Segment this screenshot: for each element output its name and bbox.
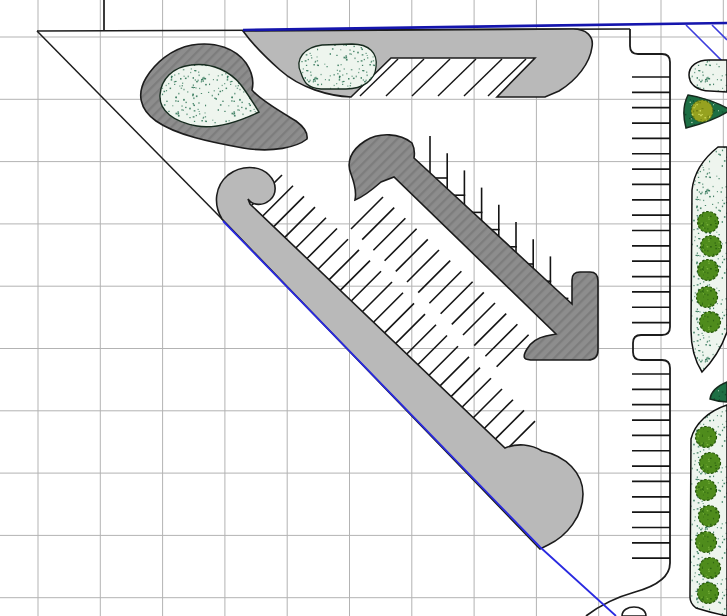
center-median-island [349, 135, 598, 360]
top-median-island [243, 29, 592, 97]
tree-symbol [696, 532, 717, 553]
landscape-right-layer [684, 60, 727, 616]
tree-symbol [698, 260, 719, 281]
top-median-layer [243, 29, 592, 97]
landscape-bed-wedge-small [710, 382, 727, 402]
tree-symbol [696, 480, 717, 501]
guide-blue-diagonal-2 [712, 25, 727, 40]
tree-symbol [701, 236, 722, 257]
landscape-bed-petal-top [689, 60, 727, 92]
tree-symbol [698, 212, 719, 233]
tree-symbol [697, 287, 718, 308]
tree-symbol [698, 583, 719, 604]
tree-symbol [700, 312, 721, 333]
drawing-viewport[interactable] [0, 0, 727, 616]
shrub-mass-symbol [691, 100, 713, 122]
tree-symbol [700, 558, 721, 579]
island-tip-bump [622, 607, 646, 616]
landscape-bed-leaf-middle [691, 147, 727, 372]
planting-bed [299, 44, 376, 89]
site-plan-canvas[interactable] [0, 0, 727, 616]
tree-symbol [700, 453, 721, 474]
tree-symbol [696, 427, 717, 448]
tree-symbol [699, 506, 720, 527]
